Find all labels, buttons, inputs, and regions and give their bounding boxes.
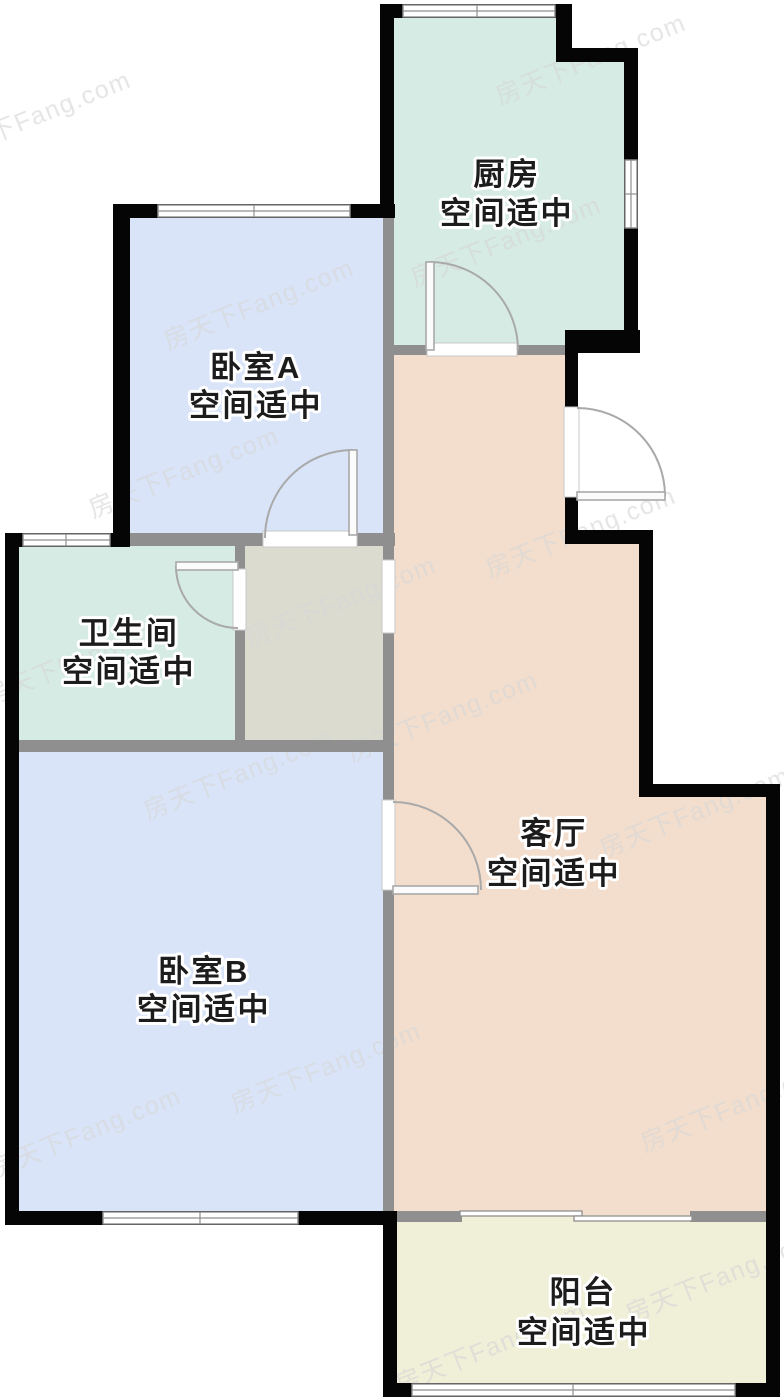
bedroom-a-note: 空间适中 — [189, 388, 323, 423]
entrance-door-opening — [564, 407, 579, 497]
floor-plan: 房天下Fang.com 房天下Fang.com 房天下Fang.com 房天下F… — [0, 0, 784, 1400]
storage-passage-opening — [382, 560, 395, 633]
bedroom-b-bottom-window — [103, 1212, 298, 1224]
wall-right-lower — [766, 784, 780, 1397]
wall-left-rooms-living-divider — [383, 213, 394, 1211]
kitchen-right-window — [625, 160, 637, 228]
kitchen-door-opening — [427, 343, 517, 356]
bathroom-note: 空间适中 — [62, 654, 196, 689]
wall-kitchen-left — [380, 4, 394, 218]
watermark-text: 房天下Fang.com — [0, 66, 135, 168]
kitchen-note: 空间适中 — [440, 196, 574, 231]
kitchen-top-window — [403, 5, 555, 17]
wall-living-step-horizontal — [639, 784, 780, 797]
balcony-note: 空间适中 — [517, 1315, 651, 1350]
bedroom-b-door-opening — [382, 800, 395, 890]
living-room-label: 客厅 — [521, 816, 588, 851]
bedroom-b-note: 空间适中 — [137, 992, 271, 1027]
bedroom-a-door-opening — [263, 531, 357, 547]
bedroom-a-top-window — [158, 205, 350, 217]
bedroom-a-label: 卧室A — [210, 350, 302, 385]
bathroom-door-opening — [233, 569, 246, 630]
kitchen-label: 厨房 — [474, 157, 541, 192]
balcony-bottom-window — [412, 1384, 735, 1396]
balcony-label: 阳台 — [550, 1275, 617, 1310]
bathroom-label: 卫生间 — [79, 616, 180, 651]
floor-plan-canvas: 房天下Fang.com 房天下Fang.com 房天下Fang.com 房天下F… — [0, 0, 784, 1400]
wall-balcony-left — [383, 1211, 397, 1397]
wall-living-right-upper — [639, 530, 653, 797]
wall-left — [5, 533, 19, 1225]
wall-balcony-divider-right-stub — [690, 1211, 768, 1222]
wall-balcony-divider-left-stub — [395, 1211, 462, 1222]
living-room-note: 空间适中 — [487, 856, 621, 891]
living-room-floor — [383, 345, 778, 1218]
wall-bathroom-storage-bottom — [19, 740, 394, 752]
bedroom-b-label: 卧室B — [158, 954, 250, 989]
bathroom-top-window — [23, 534, 110, 546]
wall-bedroom-a-left — [113, 204, 130, 547]
wall-entry-above — [565, 345, 578, 407]
entrance-door — [577, 408, 665, 500]
